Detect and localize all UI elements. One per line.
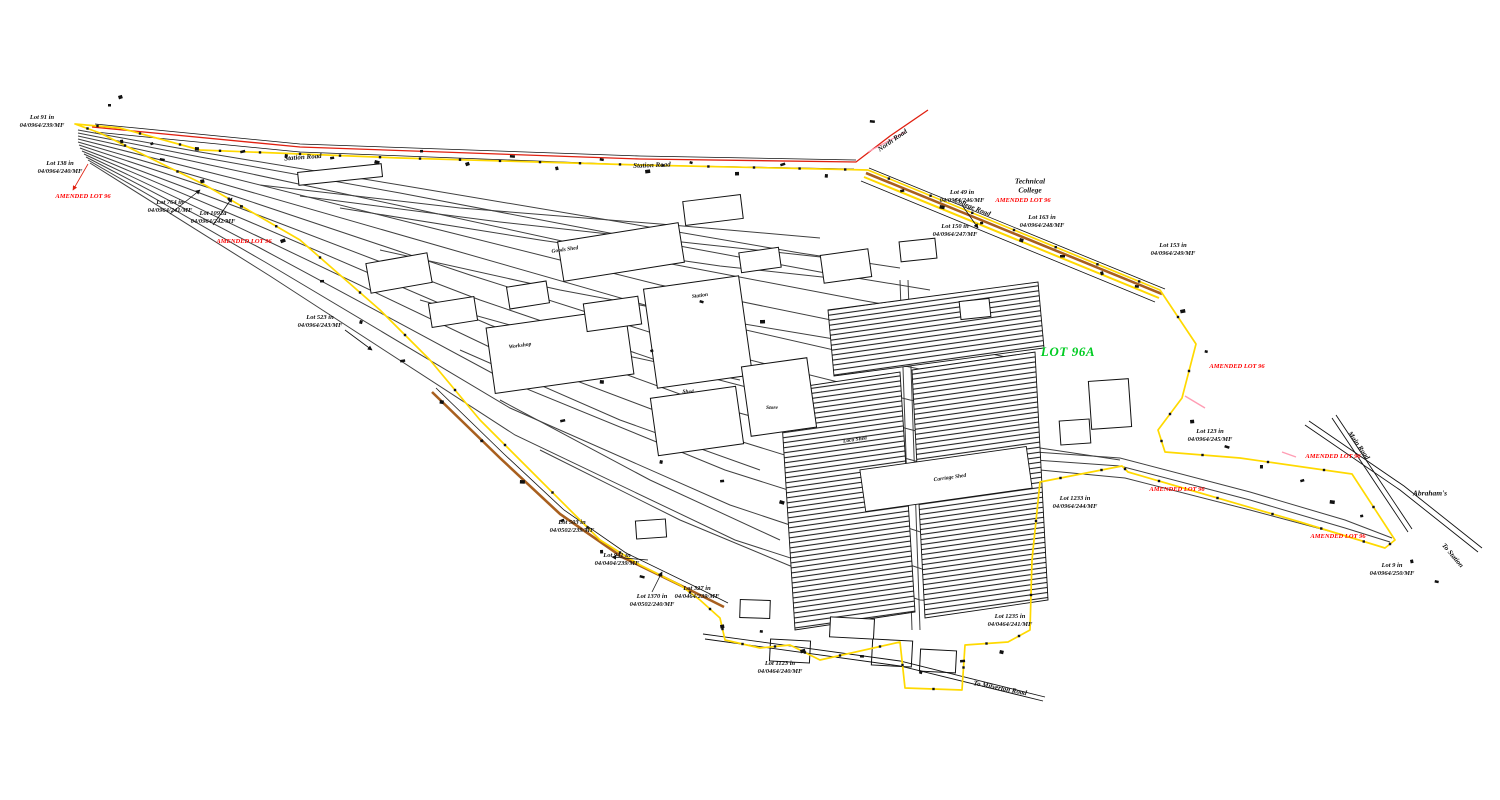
site-plan-canvas xyxy=(0,0,1500,800)
survey-plan-page: LOT 96A Lot 91 in04/0964/239/MFLot 138 i… xyxy=(0,0,1500,800)
lot-96a-label: LOT 96A xyxy=(1041,344,1095,360)
